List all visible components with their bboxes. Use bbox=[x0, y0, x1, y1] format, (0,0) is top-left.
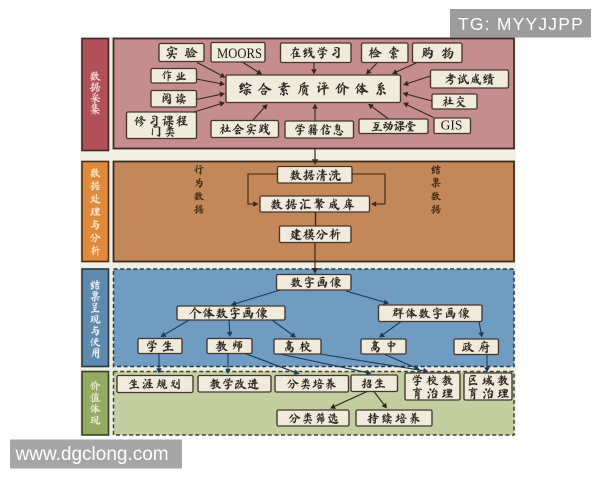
svg-text:TG: MYYJJPP: TG: MYYJJPP bbox=[458, 14, 584, 34]
svg-text:MOORS: MOORS bbox=[217, 45, 262, 62]
svg-text:www.dgclong.com: www.dgclong.com bbox=[15, 444, 169, 465]
svg-text:GIS: GIS bbox=[441, 118, 463, 133]
